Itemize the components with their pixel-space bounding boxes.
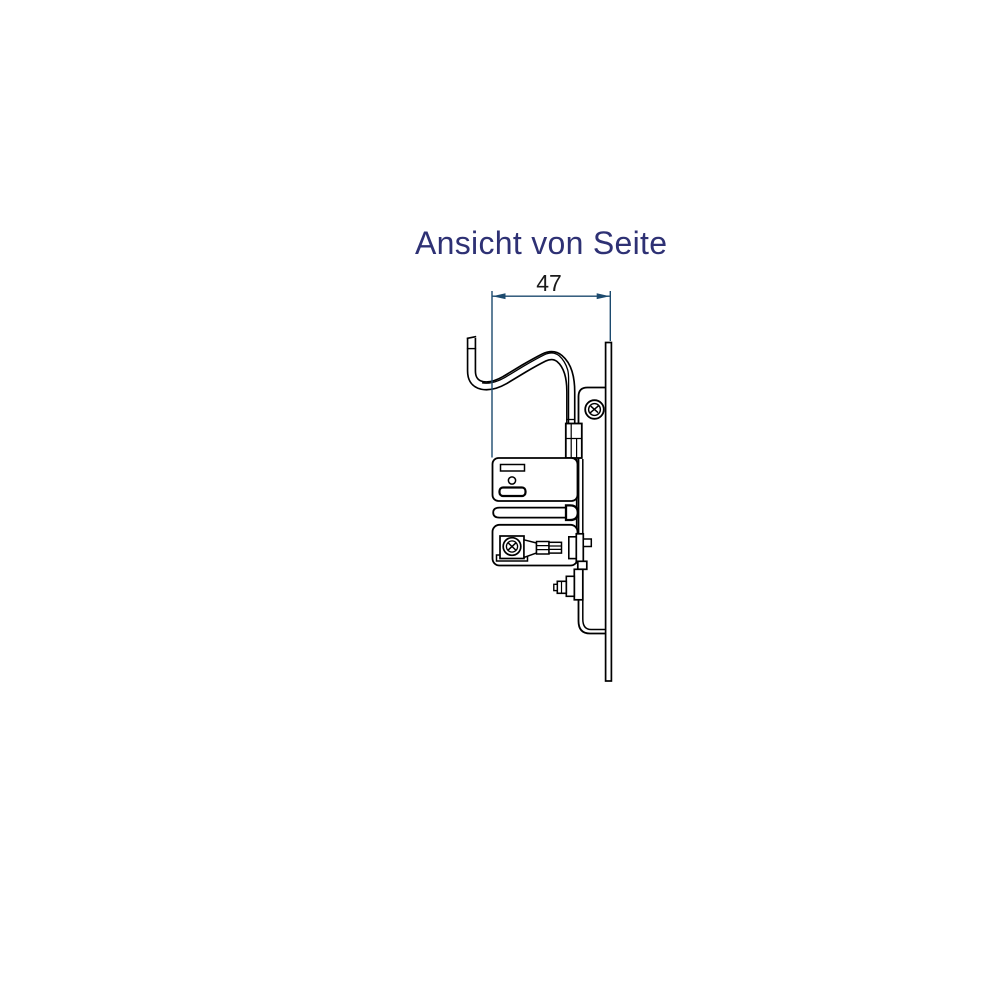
clamp-plug [549, 542, 562, 553]
bracket-hole [508, 477, 515, 484]
bracket-slot-top [501, 465, 525, 472]
hook-sleeve [566, 420, 582, 459]
technical-drawing [0, 0, 1000, 1000]
terminal-block [554, 569, 583, 600]
arrow-right-icon [597, 293, 610, 299]
drawing-page: Ansicht von Seite 47 [0, 0, 1000, 1000]
hook [467, 337, 571, 424]
clamp-barrel [537, 542, 550, 555]
clamp-screw-icon [503, 538, 521, 556]
slotted-bracket [493, 458, 578, 501]
mounting-plate [606, 343, 612, 682]
arrow-left-icon [492, 293, 505, 299]
upper-screw-icon [585, 400, 604, 419]
bracket-slot-bottom [500, 488, 526, 497]
latch-arm [493, 505, 578, 520]
clamp-bracket [493, 525, 592, 570]
